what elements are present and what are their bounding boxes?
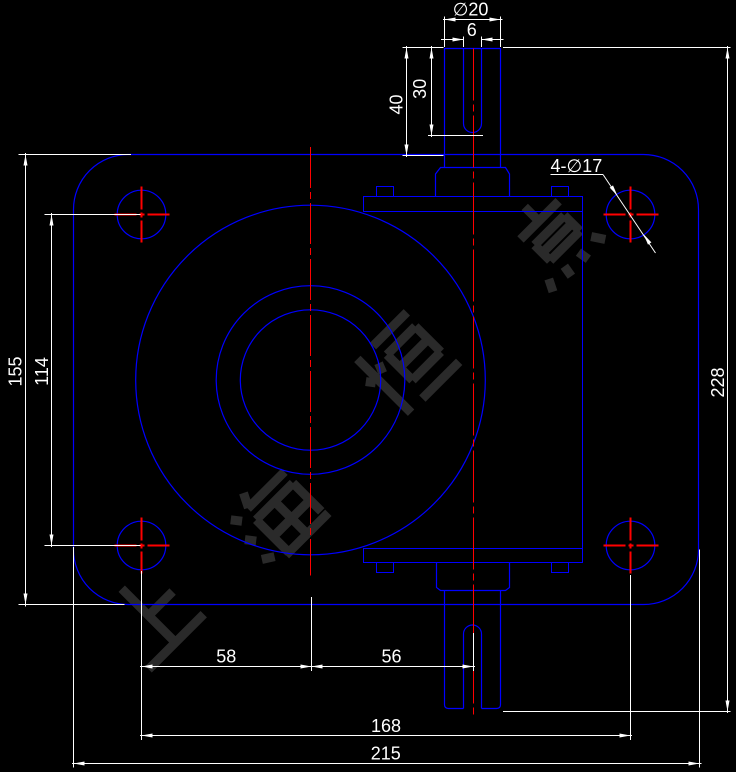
svg-text:30: 30 [410,79,430,99]
svg-text:114: 114 [32,357,52,386]
svg-text:4-∅17: 4-∅17 [551,156,603,176]
svg-text:155: 155 [6,356,26,386]
svg-text:56: 56 [381,647,401,667]
svg-text:168: 168 [371,716,401,736]
svg-text:215: 215 [371,744,401,764]
svg-text:6: 6 [467,20,477,40]
svg-text:∅20: ∅20 [453,0,489,20]
svg-text:40: 40 [386,94,406,114]
svg-text:228: 228 [708,367,728,397]
svg-text:58: 58 [216,647,236,667]
